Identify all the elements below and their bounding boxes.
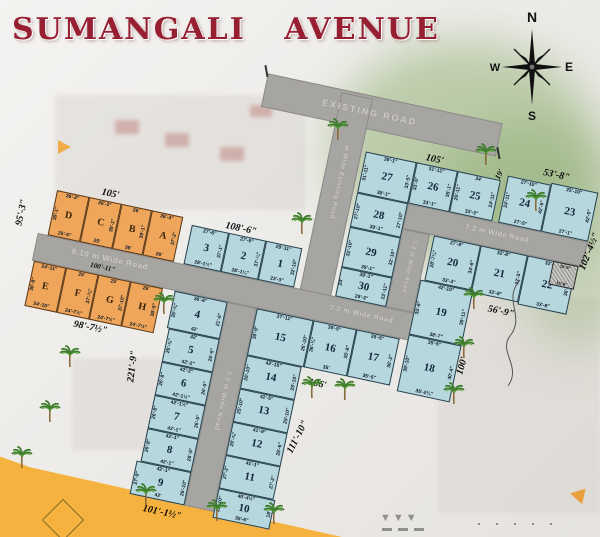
compass-n: N [527,9,537,25]
plot-25-dim-top: 34' [475,176,483,183]
boundary-dim-orange-top: 105' [101,187,121,201]
plot-3-dim-top: 27'-6" [202,228,217,237]
road-vertical-south-label: 7.2 m Wide Road [213,370,233,431]
plot-16-dim-left: 36'-¾" [308,337,317,353]
plot-1-dim-top: 29'-11" [275,244,292,253]
plot-C-number: C [96,217,105,229]
plot-20-number: 20 [446,256,459,270]
plot-7-dim-right: 26'-5" [194,414,203,429]
road-existing-vertical-label: m Wide Existing Road [328,145,349,220]
plot-G-dim-bottom: 24'-7½" [97,314,116,324]
plot-26-dim-right: 35'-1" [445,183,454,198]
palm-tree-icon [333,378,357,402]
plot-2-number: 2 [240,250,248,263]
boundary-dim-orange-left: 95'-3" [14,198,30,226]
plot-8-dim-top: 42'-1" [165,433,180,442]
plot-3-number: 3 [202,242,210,255]
plot-17-dim-bottom: 35'-5" [362,373,377,382]
plot-9-dim-top: 42'-1" [156,466,171,475]
plot-20-dim-bottom: 33'-3" [441,277,456,286]
plot-10-number: 10 [237,502,250,516]
compass-s: S [528,109,536,123]
palm-tree-icon [134,483,158,507]
road-end-tick [264,65,268,77]
palm-tree-icon [452,336,476,360]
plot-C-dim-bottom: 25' [93,238,101,245]
plot-19-number: 19 [434,305,447,319]
plot-5-dim-left: 26'-⅝" [165,338,174,354]
plot-7-dim-top: 42'-1½" [170,399,189,409]
plot-5-dim-top: 42' [189,334,197,341]
plot-D-number: D [64,210,73,222]
palm-tree-icon [262,502,286,526]
palm-tree-icon [442,382,466,406]
utility-dim-top: 15'-8" [559,263,571,270]
plot-13-dim-left: 25'-10" [236,397,245,414]
plot-25-dim-bottom: 33'-3" [464,208,479,217]
plot-26-dim-top: 31'-11" [428,166,445,175]
palm-tree-icon [326,118,350,142]
plot-29-number: 29 [364,245,377,259]
palm-tree-icon [300,376,324,400]
plot-29-dim-right: 32'-10" [387,248,396,265]
plot-14-dim-left: 26'-10" [243,364,252,381]
plot-20-dim-left: 28'-7¼" [429,250,439,269]
plot-1-dim-right: 32'-10" [289,258,298,275]
plot-19-dim-right: 39'-11" [459,309,468,326]
plot-7-number: 7 [173,410,181,423]
plot-25-number: 25 [468,189,481,203]
plot-12-dim-left: 26'-⅝" [229,431,238,447]
palm-tree-icon [290,212,314,236]
utility-plot: 15'-8" 15'-8" [548,261,578,290]
plot-G-number: G [105,294,115,306]
plot-15-dim-top: 37'-11" [276,314,293,323]
plot-13-number: 13 [257,404,270,418]
palm-tree-icon [524,189,548,213]
plot-17-dim-top: 35'-5" [370,334,385,343]
page-title: SUMANGALI AVENUE [12,12,440,47]
plot-11-dim-left: 27'-2" [222,465,231,480]
plot-D-dim-bottom: 25'-5" [57,230,72,239]
plot-26-number: 26 [426,180,439,194]
plot-A-dim-top: 26'-3" [160,213,175,222]
plot-1-number: 1 [276,257,284,270]
plot-E-dim-left: 36'-8" [29,277,38,292]
compass-e: E [565,60,573,74]
plot-28-dim-right: 27'-10" [395,211,404,228]
plot-6-dim-left: 26'-8" [158,372,167,387]
palm-tree-icon [10,446,34,470]
compass-star: N S W E [488,6,576,124]
plot-B-dim-bottom: 26' [124,245,132,252]
plot-25-dim-right: 24'-11" [488,191,497,208]
plot-21-dim-top: 32'-8" [496,250,511,259]
plot-23-dim-right: 42'-5" [585,209,594,224]
plot-23-number: 23 [563,205,576,219]
plot-H-number: H [137,301,147,313]
plot-16-dim-top: 35'-5" [327,324,342,333]
plot-12-number: 12 [250,437,263,451]
plot-2-dim-right: 37'-¼" [253,251,262,267]
plot-G-dim-top: 25' [110,278,118,285]
palm-tree-icon [462,287,486,311]
plot-23-dim-top: 25'-10" [565,187,582,196]
plot-B-number: B [128,223,137,235]
plot-29-dim-left: 32'-10" [345,239,354,256]
plot-F-number: F [73,287,81,299]
plot-30-dim-right: 22'-11" [380,283,389,300]
utility-dim-bottom: 15'-8" [556,280,568,287]
plot-27-dim-right: 33'-5" [404,175,413,190]
plot-E-dim-bottom: 24'-10" [33,301,50,310]
plot-24-dim-bottom: 27'-5" [513,219,528,228]
plot-13-dim-right: 25'-10" [282,407,291,424]
plot-E-dim-top: 24'-11" [41,264,58,273]
plot-11-number: 11 [243,470,256,484]
plot-16-number: 16 [324,341,337,355]
plot-2-dim-top: 27'-5" [239,236,254,245]
plot-26-dim-bottom: 33'-1" [422,200,437,209]
plot-30-number: 30 [357,280,370,294]
plot-9-dim-right: 26'-10" [179,479,188,496]
plot-B-dim-top: 26' [132,207,140,214]
plot-5-number: 5 [187,344,195,357]
plot-A-number: A [158,230,167,242]
plot-4-number: 4 [193,308,201,321]
plot-22-dim-bottom: 33'-8" [535,301,550,310]
plot-15-number: 15 [274,331,287,345]
plot-18-number: 18 [423,361,436,375]
plot-27-dim-top: 39'-1" [383,156,398,165]
plot-30-dim-left: 24' [338,278,345,286]
plot-30-dim-bottom: 29'-3" [354,293,369,302]
plot-8-dim-right: 26'-5" [187,447,196,462]
plot-C-dim-top: 26'-3" [97,200,112,209]
palm-tree-icon [205,499,229,523]
plot-E-number: E [41,281,50,293]
plot-A-dim-right: 37'-2" [170,231,179,246]
path-squiggle [492,278,532,388]
plot-6-dim-right: 26'-5" [201,381,210,396]
palm-tree-icon [474,143,498,167]
plot-11-dim-right: 27'-2" [269,475,278,490]
plot-6-number: 6 [180,377,188,390]
plot-6-dim-top: 42'-2" [179,367,194,376]
palm-tree-icon [58,345,82,369]
plot-27-number: 27 [380,170,393,184]
compass-w: W [490,62,501,74]
plot-F-dim-top: 25' [78,271,86,278]
plot-17-dim-right: 36'-2" [386,354,395,369]
plot-8-number: 8 [166,444,174,457]
page: ▼▼▼ SUMANGALI AVENUE N S W E EXISTING RO… [0,0,600,537]
palm-tree-icon [38,400,62,424]
plot-15-dim-left: 30'-9" [252,325,261,340]
plot-D-dim-top: 26'-3" [65,193,80,202]
plot-20-dim-top: 27'-9" [449,240,464,249]
plot-8-dim-left: 26'-8" [144,438,153,453]
plot-14-dim-right: 25'-10" [289,374,298,391]
plot-24-dim-left: 24'-11" [503,191,512,208]
plot-3: 327'-6"28'-1½"37'-1" [184,225,229,272]
plot-27-dim-left: 31'-11" [361,164,370,181]
plot-19-dim-left: 35'-8" [414,301,423,316]
plot-H-dim-top: 26' [142,285,150,292]
plot-19-dim-bottom: 38'-7" [429,332,444,341]
plot-16-dim-bottom: 35' [322,364,330,371]
plot-10-dim-bottom: 35'-6" [234,515,249,524]
plot-5-dim-right: 26'-5" [208,348,217,363]
plot-A-dim-bottom: 26' [155,251,163,258]
boundary-dim-ne-top-right: 53'-8" [542,167,570,183]
boundary-dim-west-221: 221'-9" [125,350,140,383]
road-vertical-east-label: 7.2 m Wide Road [401,240,418,293]
plot-4-dim-right: 21'-6" [215,313,224,328]
palm-tree-icon [152,292,176,316]
road-main-label: 7.2 m Wide Road [329,304,394,324]
plot-D-dim-left: 39'-1" [52,206,61,221]
plot-17-number: 17 [367,350,380,364]
plot-18-dim-bottom: 35'-2¼" [415,388,434,398]
plot-7-dim-left: 26'-8" [151,405,160,420]
plot-F-dim-bottom: 24'-7½" [64,307,83,317]
plot-28-number: 28 [372,208,385,222]
plot-3-dim-right: 37'-1" [217,244,226,259]
plot-23-dim-bottom: 27'-1" [558,228,573,237]
plot-26: 2631'-11"33'-1"33'-5"35'-1" [408,162,458,212]
plot-24-dim-top: 27'-10" [520,179,537,188]
plot-1-dim-bottom: 23'-3" [270,275,285,284]
compass-rose: N S W E [488,6,576,124]
plot-H-dim-bottom: 24'-7½" [129,321,148,331]
plot-4-dim-top: 36'-8" [193,296,208,305]
plot-25: 2534'33'-3"26'-11"24'-11" [449,171,501,221]
plot-12-dim-right: 25'-6" [276,442,285,457]
plot-18-dim-left: 39'-10" [402,355,411,372]
plot-14-number: 14 [264,370,277,384]
plot-25-dim-left: 26'-11" [453,184,462,201]
plot-28-dim-left: 27'-10" [353,202,362,219]
